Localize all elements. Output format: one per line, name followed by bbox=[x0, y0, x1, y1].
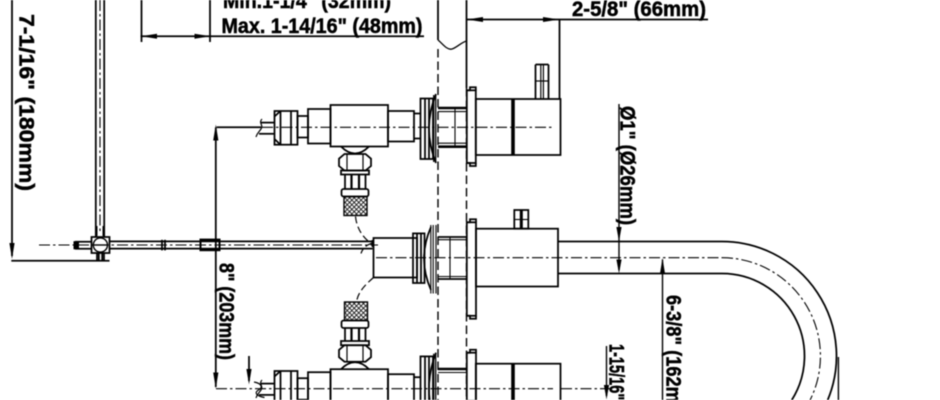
svg-text:Min.1-1/4" (32mm): Min.1-1/4" (32mm) bbox=[223, 0, 391, 13]
svg-text:Max. 1-14/16" (48mm): Max. 1-14/16" (48mm) bbox=[222, 15, 423, 38]
svg-text:1-15/16" (49mm): 1-15/16" (49mm) bbox=[605, 344, 628, 400]
svg-text:7-1/16" (180mm): 7-1/16" (180mm) bbox=[15, 14, 38, 191]
svg-text:8" (203mm): 8" (203mm) bbox=[215, 263, 238, 360]
svg-text:2-5/8" (66mm): 2-5/8" (66mm) bbox=[572, 0, 706, 21]
svg-text:6-3/8" (162mm): 6-3/8" (162mm) bbox=[662, 295, 685, 400]
svg-text:Ø1" (Ø26mm): Ø1" (Ø26mm) bbox=[616, 106, 639, 225]
